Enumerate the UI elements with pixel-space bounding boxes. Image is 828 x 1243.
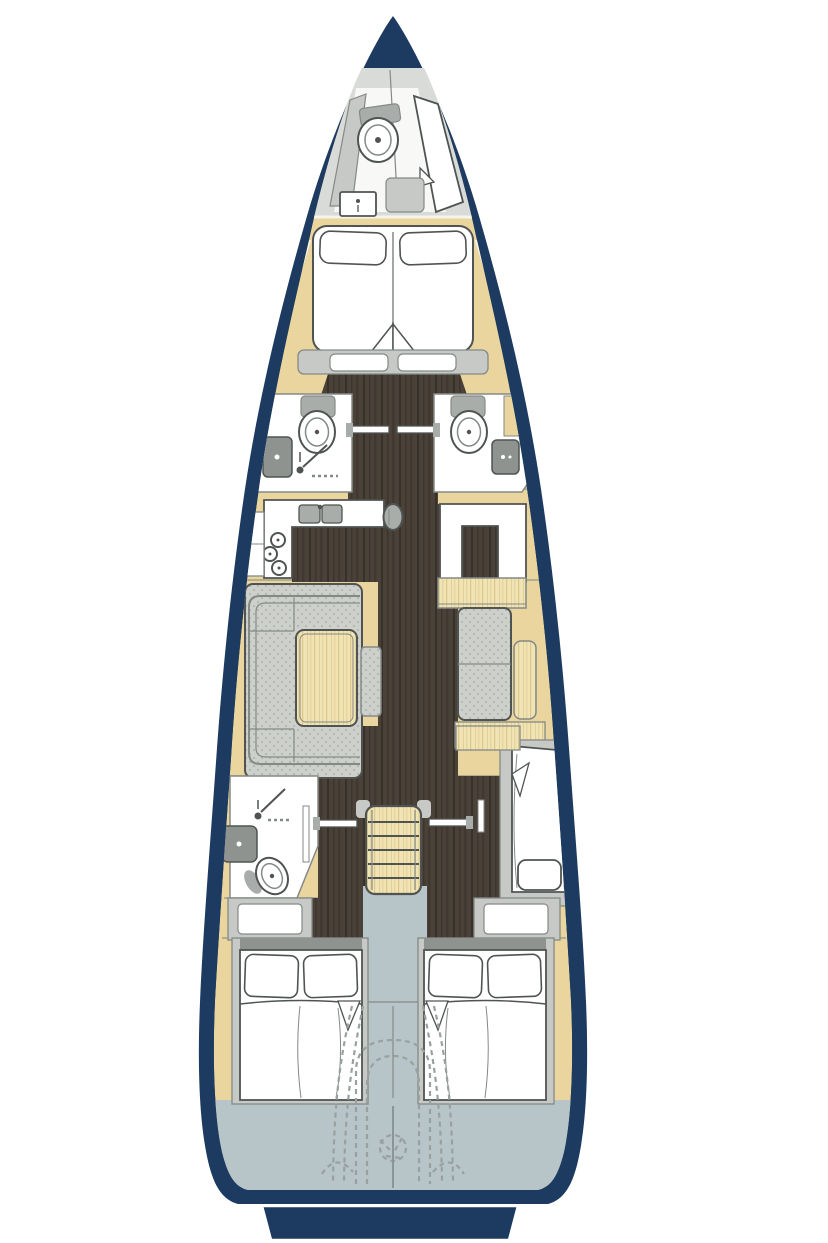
door-hinge xyxy=(313,817,320,830)
footboard-cushion-stbd xyxy=(398,354,456,371)
mast-icon xyxy=(384,504,403,530)
washbasin-dot xyxy=(275,455,280,460)
stair-rungs xyxy=(368,810,419,890)
bathroom-door-frame xyxy=(303,806,309,862)
washbasin-dot xyxy=(237,842,242,847)
salon-table xyxy=(296,630,357,726)
owner-cabin xyxy=(298,226,488,374)
bow-sink-icon xyxy=(340,192,376,216)
door-leaf xyxy=(397,426,434,433)
salon-center-seat xyxy=(361,647,381,716)
stbd-side-table xyxy=(514,641,536,719)
toilet-icon-fwd-stbd xyxy=(451,411,487,453)
berth-pillow xyxy=(518,860,561,890)
swim-platform xyxy=(262,1206,518,1240)
pillow xyxy=(487,954,541,998)
door-hinge xyxy=(346,423,353,437)
footboard-cushion-port xyxy=(330,354,388,371)
toilet-icon-fwd-port xyxy=(299,411,335,453)
door-leaf xyxy=(319,820,357,827)
forward-corridor-floor xyxy=(348,396,438,514)
owner-footboard-bench xyxy=(298,350,488,374)
yacht-deck-plan xyxy=(0,0,828,1243)
galley-sink-icon xyxy=(299,505,342,523)
bathroom-aft-port xyxy=(222,776,318,900)
door-frame xyxy=(478,800,484,832)
vanity-stbd-top xyxy=(484,904,548,934)
nav-niche-floor xyxy=(462,526,498,582)
vanity-port-top xyxy=(238,904,302,934)
washbasin-fwd-stbd xyxy=(492,440,519,474)
door-hinge xyxy=(466,816,473,829)
pillow xyxy=(303,954,357,998)
pillow xyxy=(428,954,482,998)
berth-step xyxy=(456,726,520,750)
owner-pillow-port xyxy=(319,231,386,265)
washbasin-dot xyxy=(501,455,505,459)
door-hinge xyxy=(433,423,440,437)
washbasin-dot xyxy=(509,456,512,459)
aft-cabin-starboard xyxy=(418,938,554,1104)
aft-cabin-port xyxy=(232,938,368,1104)
owner-pillow-stbd xyxy=(399,231,466,265)
door-leaf xyxy=(352,426,389,433)
bow-step xyxy=(386,178,424,212)
door-leaf xyxy=(429,819,467,826)
bow-cabin xyxy=(330,70,463,216)
companionway-stairs xyxy=(356,800,431,894)
yacht-deck-plan-page xyxy=(0,0,828,1243)
bow-toilet-icon xyxy=(358,118,398,162)
pillow xyxy=(244,954,298,998)
